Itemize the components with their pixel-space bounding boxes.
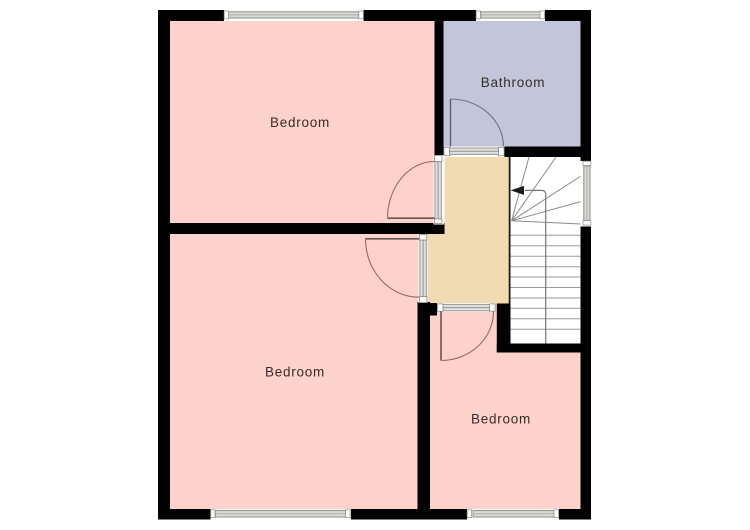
svg-text:Bedroom: Bedroom: [471, 412, 531, 427]
svg-text:Bathroom: Bathroom: [481, 75, 546, 90]
svg-text:Bedroom: Bedroom: [270, 115, 330, 130]
svg-text:Bedroom: Bedroom: [265, 365, 325, 380]
